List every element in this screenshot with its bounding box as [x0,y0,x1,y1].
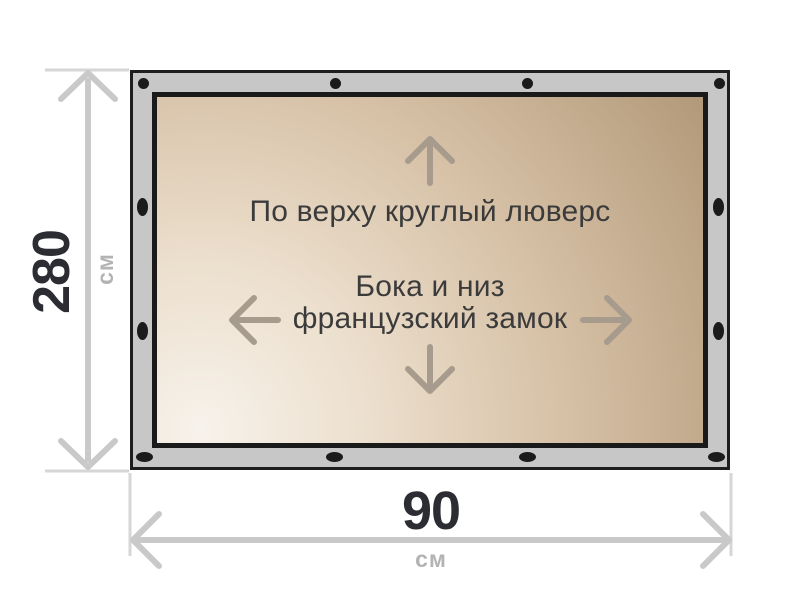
oval-grommet-icon [519,452,536,462]
round-grommet-icon [138,78,149,89]
oval-grommet-icon [136,452,153,462]
sides-lock-note-line1: Бока и низ [155,271,705,303]
round-grommet-icon [522,78,533,89]
oval-grommet-icon [713,198,724,216]
width-arrowhead-right-icon [703,514,729,566]
oval-grommet-icon [137,198,148,216]
product-dimension-diagram: По верху круглый люверс Бока и низ франц… [0,0,800,600]
width-arrowhead-left-icon [133,514,159,566]
top-grommet-note: По верху круглый люверс [155,195,705,229]
width-unit-label: см [331,546,531,573]
height-arrowhead-down-icon [61,441,115,467]
oval-grommet-icon [137,322,148,340]
oval-grommet-icon [708,452,725,462]
height-value-label: 280 [26,220,78,324]
height-unit-label: см [91,241,119,297]
oval-grommet-icon [326,452,343,462]
sides-lock-note-line2: французский замок [155,303,705,335]
sides-lock-note: Бока и низ французский замок [155,271,705,334]
round-grommet-icon [330,78,341,89]
round-grommet-icon [714,78,725,89]
oval-grommet-icon [713,322,724,340]
width-value-label: 90 [331,484,531,538]
height-arrowhead-up-icon [61,73,115,99]
